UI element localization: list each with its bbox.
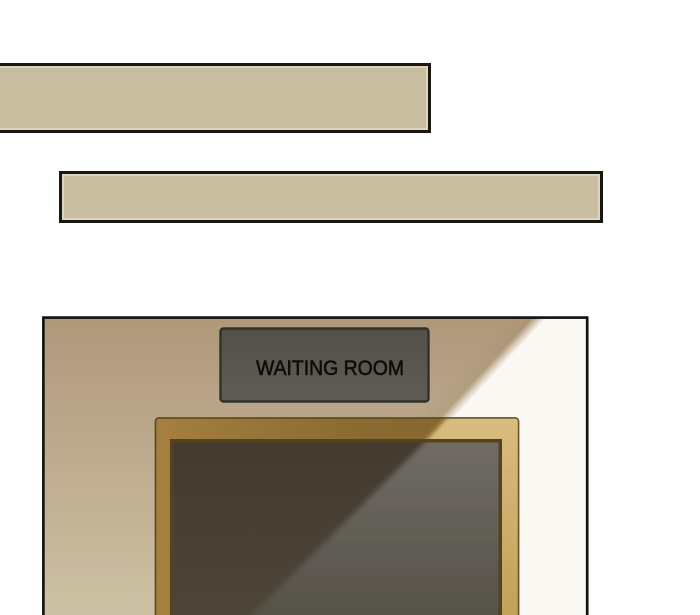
svg-text:WAITING ROOM: WAITING ROOM xyxy=(256,356,404,380)
